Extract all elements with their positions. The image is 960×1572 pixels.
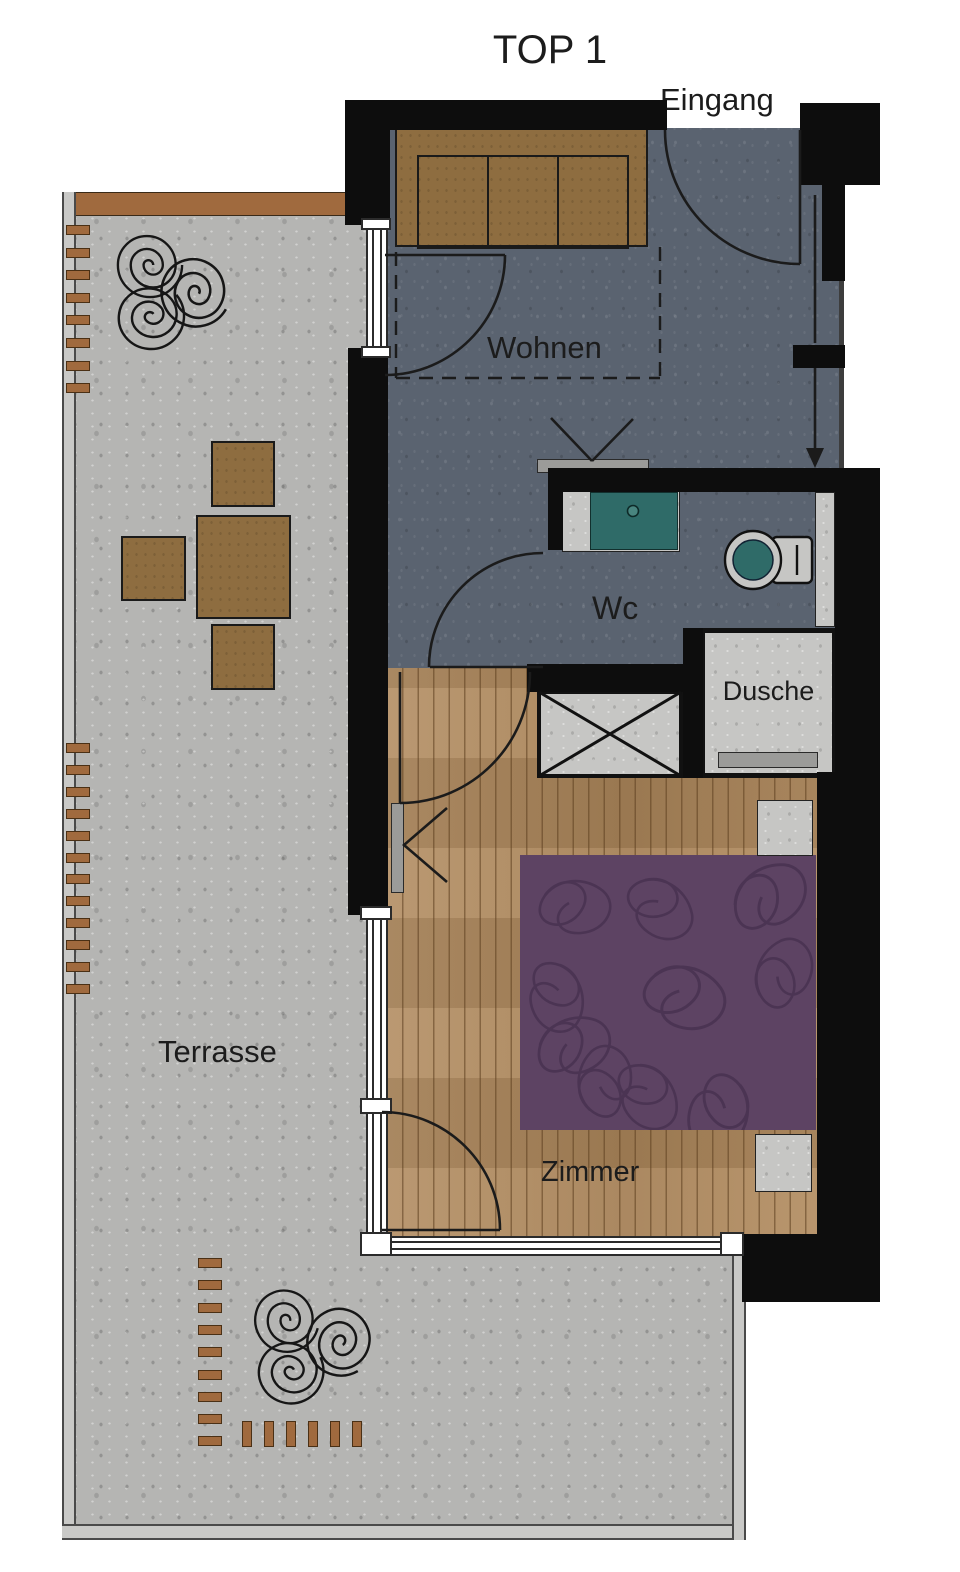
wall-northwest-corner [345, 100, 390, 225]
deco-plank-tick [66, 338, 90, 348]
deco-plank-tick [308, 1421, 318, 1447]
deco-plank-tick [198, 1414, 222, 1424]
glazing-east-1 [839, 281, 844, 345]
wall-wc-south [527, 664, 703, 692]
living-room-label: Wohnen [487, 330, 602, 366]
sofa-seat [487, 155, 559, 249]
deco-plank-tick [352, 1421, 362, 1447]
deco-plank-tick [66, 853, 90, 863]
deco-plank-tick [198, 1347, 222, 1357]
deco-plank-tick [66, 248, 90, 258]
window-joint [361, 346, 391, 358]
window-joint [361, 218, 391, 230]
installation-shaft [537, 690, 683, 778]
deco-plank-tick [286, 1421, 296, 1447]
deco-plank-tick [242, 1421, 252, 1447]
window-joint [360, 906, 392, 920]
deco-plank-tick [66, 874, 90, 884]
wall-east-upper [822, 185, 845, 281]
deco-plank-tick [66, 225, 90, 235]
deco-plank-tick [198, 1325, 222, 1335]
terrace-chair-left [121, 536, 186, 601]
nightstand-bottom [755, 1134, 812, 1192]
sofa-seat [557, 155, 629, 249]
deco-plank-tick [66, 315, 90, 325]
deco-plank-tick [66, 809, 90, 819]
deco-plank-tick [66, 743, 90, 753]
terrace-table [196, 515, 291, 619]
deco-plank-tick [66, 831, 90, 841]
deco-plank-tick [66, 293, 90, 303]
deco-plank-tick [264, 1421, 274, 1447]
wc-label: Wc [592, 590, 638, 627]
wc-wall-ledge [815, 492, 835, 627]
deco-plank-tick [198, 1258, 222, 1268]
deco-plank-tick [198, 1370, 222, 1380]
deco-plank-tick [66, 962, 90, 972]
sofa-seats [417, 155, 627, 249]
wall-east-lower [817, 772, 880, 1272]
bed [520, 855, 816, 1130]
terrace-label: Terrasse [158, 1034, 277, 1070]
deco-plank-tick [330, 1421, 340, 1447]
radiator [391, 803, 404, 893]
window-end-joint [720, 1232, 744, 1256]
window-bedroom-south [368, 1236, 742, 1256]
terrace-floor-upper [62, 192, 368, 1254]
wall-west [348, 348, 388, 915]
window-living-west [366, 226, 388, 350]
deco-plank-tick [66, 940, 90, 950]
terrace-left-border [62, 192, 76, 1540]
wall-north [345, 100, 667, 130]
terrace-floor-lower [62, 1254, 746, 1540]
glazing-east-2 [839, 368, 844, 470]
deco-plank-tick [66, 383, 90, 393]
terrace-wood-band [62, 192, 348, 216]
wall-wc-north [548, 468, 880, 492]
entrance-label: Eingang [660, 82, 774, 118]
nightstand-top [757, 800, 813, 856]
deco-plank-tick [66, 270, 90, 280]
deco-plank-tick [66, 361, 90, 371]
wall-wc-west-stub [548, 492, 563, 550]
deco-plank-tick [198, 1436, 222, 1446]
floor-plan: TOP 1 Eingang [0, 0, 960, 1572]
shower-drain-bar [718, 752, 818, 768]
wall-entry-pier [800, 103, 880, 185]
sofa [395, 128, 648, 247]
shower-label: Dusche [700, 676, 837, 707]
window-bedroom-west [366, 912, 388, 1238]
deco-plank-tick [66, 896, 90, 906]
deco-plank-tick [198, 1303, 222, 1313]
plan-title: TOP 1 [430, 28, 670, 73]
sink [590, 492, 678, 550]
deco-plank-tick [198, 1280, 222, 1290]
deco-plank-tick [66, 765, 90, 775]
bedroom-label: Zimmer [541, 1156, 639, 1189]
terrace-chair-top [211, 441, 275, 507]
terrace-bottom-border [62, 1524, 746, 1540]
wall-east-stub [793, 345, 845, 368]
deco-plank-tick [66, 787, 90, 797]
wall-south [742, 1234, 880, 1302]
sofa-seat [417, 155, 489, 249]
window-corner-joint [360, 1232, 392, 1256]
deco-plank-tick [66, 918, 90, 928]
deco-plank-tick [66, 984, 90, 994]
window-joint [360, 1098, 392, 1114]
deco-plank-tick [198, 1392, 222, 1402]
wall-east-mid [835, 492, 880, 773]
terrace-chair-bottom [211, 624, 275, 690]
